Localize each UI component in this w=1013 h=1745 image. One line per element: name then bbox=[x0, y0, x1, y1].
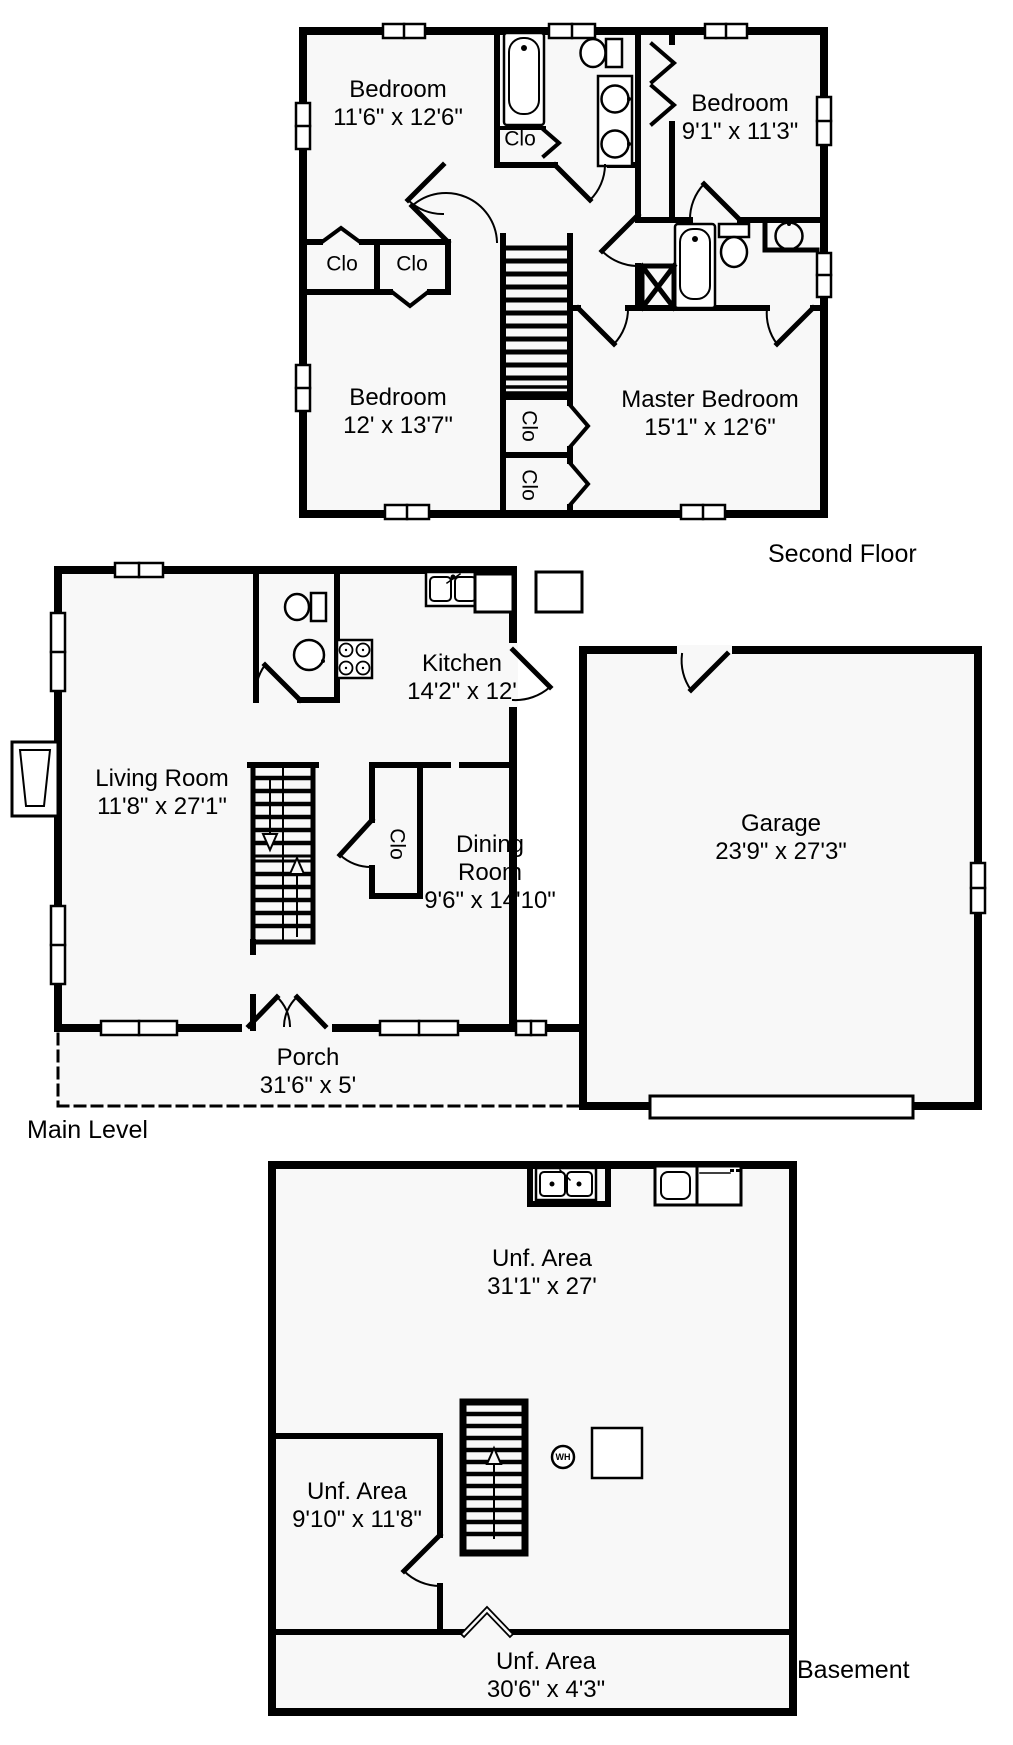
room-label-unf-strip: Unf. Area 30'6" x 4'3" bbox=[487, 1648, 605, 1704]
labels-layer: Bedroom 11'6" x 12'6" Bedroom 9'1" x 11'… bbox=[0, 0, 1013, 1745]
closet-label-stair2: Clo bbox=[516, 469, 541, 501]
room-label-unf-main: Unf. Area 31'1" x 27' bbox=[487, 1245, 597, 1301]
room-label-garage: Garage 23'9" x 27'3" bbox=[715, 810, 847, 866]
room-label-unf-small: Unf. Area 9'10" x 11'8" bbox=[292, 1478, 422, 1534]
floorplan-page: Bedroom 11'6" x 12'6" Bedroom 9'1" x 11'… bbox=[0, 0, 1013, 1745]
room-label-bedroom1: Bedroom 11'6" x 12'6" bbox=[333, 76, 463, 132]
floor-title-main: Main Level bbox=[27, 1116, 148, 1145]
floor-title-basement: Basement bbox=[797, 1656, 910, 1685]
room-label-living: Living Room 11'8" x 27'1" bbox=[95, 765, 228, 821]
closet-label-left2: Clo bbox=[396, 253, 428, 278]
room-label-bedroom2: Bedroom 9'1" x 11'3" bbox=[682, 90, 799, 146]
closet-label-hall: Clo bbox=[384, 828, 409, 860]
water-heater-label: WH bbox=[556, 1452, 571, 1462]
room-label-bedroom3: Bedroom 12' x 13'7" bbox=[343, 384, 453, 440]
room-label-porch: Porch 31'6" x 5' bbox=[260, 1044, 356, 1100]
closet-label-left1: Clo bbox=[326, 253, 358, 278]
room-label-kitchen: Kitchen 14'2" x 12' bbox=[407, 650, 517, 706]
room-label-master-bedroom: Master Bedroom 15'1" x 12'6" bbox=[621, 386, 798, 442]
room-label-dining: Dining Room 9'6" x 14'10" bbox=[424, 831, 556, 915]
closet-label-stair1: Clo bbox=[516, 410, 541, 442]
floor-title-second: Second Floor bbox=[768, 540, 917, 569]
closet-label-bath: Clo bbox=[504, 128, 536, 153]
